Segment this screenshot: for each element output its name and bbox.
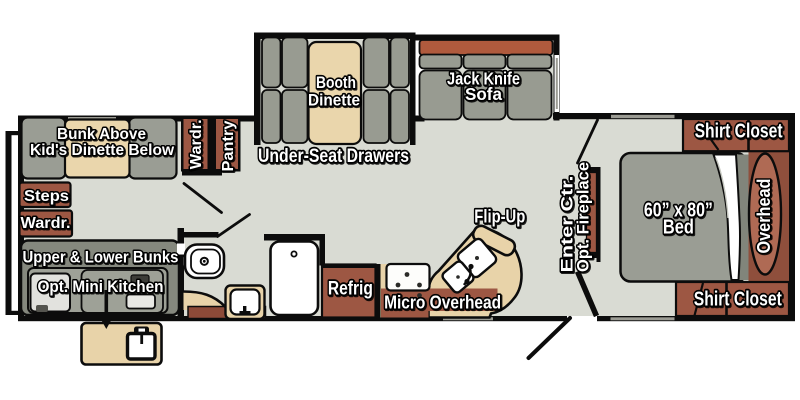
svg-text:Wardr.: Wardr. — [21, 215, 71, 232]
svg-text:Wardr.: Wardr. — [188, 119, 205, 169]
svg-text:Kid's Dinette Below: Kid's Dinette Below — [30, 142, 175, 159]
svg-text:Shirt Closet: Shirt Closet — [695, 121, 783, 143]
svg-text:Booth: Booth — [316, 73, 356, 92]
svg-text:Sofa: Sofa — [465, 84, 502, 104]
svg-text:Opt. Mini Kitchen: Opt. Mini Kitchen — [38, 277, 164, 296]
svg-text:Flip-Up: Flip-Up — [474, 207, 525, 227]
svg-text:Pantry: Pantry — [220, 120, 237, 171]
svg-text:Upper & Lower Bunks: Upper & Lower Bunks — [23, 248, 179, 267]
svg-text:Bed: Bed — [663, 217, 694, 239]
svg-text:Dinette: Dinette — [308, 91, 360, 110]
svg-text:Micro Overhead: Micro Overhead — [384, 292, 501, 312]
svg-text:Overhead: Overhead — [754, 179, 774, 254]
svg-text:Opt. Fireplace: Opt. Fireplace — [575, 162, 593, 272]
svg-text:Shirt Closet: Shirt Closet — [694, 289, 782, 311]
svg-text:Bunk Above: Bunk Above — [57, 126, 146, 143]
svg-text:Under-Seat Drawers: Under-Seat Drawers — [258, 146, 409, 167]
svg-text:Refrig: Refrig — [328, 279, 373, 300]
svg-text:Steps: Steps — [24, 188, 69, 205]
